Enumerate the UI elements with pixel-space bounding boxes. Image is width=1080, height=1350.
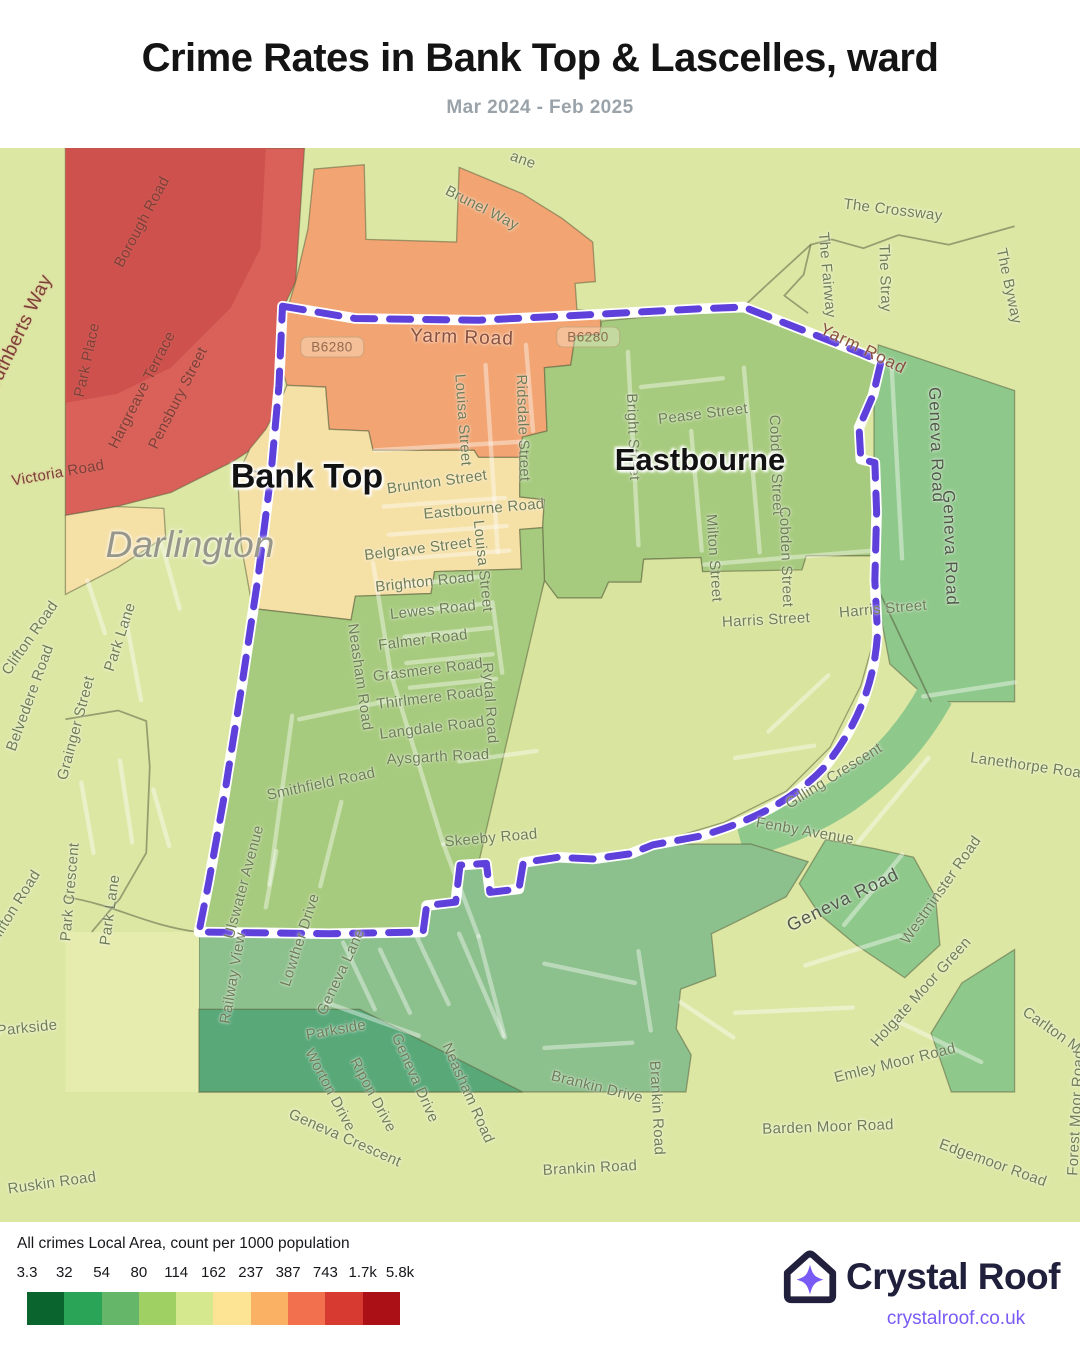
street-label-park-crescent: Park Crescent	[57, 842, 83, 942]
street-label-geneva-road: Geneva Road	[924, 387, 948, 504]
street-label-lanethorpe-road: Lanethorpe Road	[969, 749, 1080, 783]
street-label-brankin-drive: Brankin Drive	[549, 1067, 644, 1106]
sparkle-icon	[797, 1265, 824, 1295]
street-label-neasham-road: Neasham Road	[438, 1040, 497, 1145]
street-label-ulswater-avenue: Ulswater Avenue	[221, 823, 268, 940]
legend-tick: 1.7k	[349, 1264, 377, 1281]
route-chip-b6280: B6280	[300, 337, 364, 358]
street-label-yarm-road: Yarm Road	[816, 319, 909, 378]
street-label-cobden-street: Cobden Street	[776, 506, 797, 607]
street-label-skeeby-road: Skeeby Road	[444, 825, 538, 850]
street-label-harris-street: Harris Street	[722, 609, 811, 631]
street-label-geneva-road: Geneva Road	[938, 490, 962, 607]
street-label-falmer-road: Falmer Road	[377, 626, 468, 654]
street-label-parkside: Parkside	[0, 1016, 58, 1039]
street-label-belgrave-street: Belgrave Street	[363, 534, 472, 564]
street-label-milton-street: Milton Street	[702, 513, 725, 602]
report-header: Crime Rates in Bank Top & Lascelles, war…	[0, 0, 1080, 148]
legend-tick: 5.8k	[386, 1264, 414, 1281]
street-label-geneva-drive: Geneva Drive	[388, 1031, 442, 1125]
street-label-grasmere-road: Grasmere Road	[372, 655, 484, 685]
route-chip-b6280: B6280	[556, 327, 620, 348]
legend-tick: 32	[56, 1264, 73, 1281]
legend-swatch	[176, 1292, 213, 1325]
street-label-the-crossway: The Crossway	[843, 196, 944, 225]
legend-swatch	[27, 1292, 64, 1325]
legend-swatch	[139, 1292, 176, 1325]
street-label-park-lane: Park Lane	[97, 874, 124, 947]
legend-caption: All crimes Local Area, count per 1000 po…	[17, 1235, 350, 1253]
legend-color-scale	[27, 1292, 400, 1325]
place-label-bank-top: Bank Top	[231, 458, 383, 497]
report-footer: All crimes Local Area, count per 1000 po…	[0, 1222, 1080, 1350]
street-label-gilling-crescent: Gilling Crescent	[783, 739, 886, 812]
street-label-park-place: Park Place	[71, 321, 103, 398]
map-label-layer: Borough RoadSt Cuthberts WayPark PlaceHa…	[0, 148, 1080, 1222]
street-label-clifton-road: Clifton Road	[0, 598, 62, 678]
legend-swatch	[288, 1292, 325, 1325]
legend-swatch	[102, 1292, 139, 1325]
street-label-clifton-road: Clifton Road	[0, 867, 44, 949]
crystal-roof-logo: Crystal Roof crystalroof.co.uk	[780, 1246, 1070, 1342]
street-label-westminster-road: Westminster Road	[897, 833, 984, 948]
street-label-ridsdale-street: Ridsdale Street	[513, 374, 534, 482]
legend-tick: 80	[131, 1264, 148, 1281]
legend-swatch	[325, 1292, 362, 1325]
street-label-smithfield-road: Smithfield Road	[265, 764, 377, 804]
house-icon	[780, 1246, 840, 1308]
street-label-harris-street: Harris Street	[838, 597, 927, 622]
street-label-brunel-way: Brunel Way	[443, 182, 522, 233]
street-label-lewes-road: Lewes Road	[389, 597, 477, 623]
legend-tick: 3.3	[17, 1264, 38, 1281]
street-label-geneva-lane: Geneva Lane	[314, 926, 369, 1018]
street-label-neasham-road: Neasham Road	[344, 622, 376, 731]
street-label-grainger-street: Grainger Street	[54, 674, 98, 782]
street-label-st-cuthberts-way: St Cuthberts Way	[0, 271, 57, 418]
street-label-ruskin-road: Ruskin Road	[7, 1168, 98, 1197]
legend-tick: 162	[201, 1264, 226, 1281]
street-label-aysgarth-road: Aysgarth Road	[386, 746, 490, 768]
street-label-park-lane: Park Lane	[101, 601, 139, 674]
street-label-barden-moor-road: Barden Moor Road	[762, 1116, 894, 1138]
legend-swatch	[251, 1292, 288, 1325]
date-range: Mar 2024 - Feb 2025	[0, 81, 1080, 119]
street-label-louisa-street: Louisa Street	[451, 373, 474, 466]
street-label-ane: ane	[508, 148, 538, 172]
street-label-brunton-street: Brunton Street	[386, 467, 488, 498]
legend-tick: 114	[164, 1264, 188, 1281]
page: Crime Rates in Bank Top & Lascelles, war…	[0, 0, 1080, 1350]
brand-name: Crystal Roof	[846, 1256, 1060, 1298]
street-label-parkside: Parkside	[305, 1016, 368, 1043]
brand-url-link[interactable]: crystalroof.co.uk	[846, 1308, 1066, 1330]
street-label-yarm-road: Yarm Road	[410, 325, 514, 351]
street-label-brankin-road: Brankin Road	[542, 1157, 637, 1179]
street-label-the-stray: The Stray	[875, 244, 894, 312]
street-label-railway-view: Railway View	[217, 931, 250, 1025]
street-label-victoria-road: Victoria Road	[10, 456, 105, 489]
page-title: Crime Rates in Bank Top & Lascelles, war…	[0, 0, 1080, 81]
street-label-brighton-road: Brighton Road	[374, 568, 475, 595]
legend-tick: 237	[238, 1264, 263, 1281]
street-label-langdale-road: Langdale Road	[379, 713, 486, 743]
street-label-brankin-road: Brankin Road	[646, 1060, 668, 1155]
street-label-emley-moor-road: Emley Moor Road	[833, 1040, 958, 1087]
street-label-the-fairway: The Fairway	[815, 232, 839, 319]
street-label-geneva-road: Geneva Road	[784, 864, 903, 936]
legend-tick: 743	[313, 1264, 338, 1281]
street-label-borough-road: Borough Road	[111, 174, 173, 271]
street-label-forest-moor-road: Forest Moor Road	[1064, 1050, 1080, 1176]
legend-tick: 54	[93, 1264, 110, 1281]
street-label-the-byway: The Byway	[993, 247, 1026, 326]
legend-swatch	[363, 1292, 400, 1325]
street-label-rydal-road: Rydal Road	[479, 662, 502, 744]
street-label-holgate-moor-green: Holgate Moor Green	[867, 934, 974, 1050]
street-label-thirlmere-road: Thirlmere Road	[376, 683, 485, 713]
street-label-fenby-avenue: Fenby Avenue	[755, 814, 856, 848]
legend-tick: 387	[276, 1264, 301, 1281]
street-label-carlton-m: Carlton M	[1019, 1004, 1080, 1057]
legend-tick-labels: 3.33254801141622373877431.7k5.8k	[0, 1264, 460, 1284]
legend-swatch	[64, 1292, 101, 1325]
place-label-darlington: Darlington	[106, 524, 275, 566]
crime-map[interactable]: Borough RoadSt Cuthberts WayPark PlaceHa…	[0, 148, 1080, 1222]
street-label-pease-street: Pease Street	[657, 400, 749, 428]
legend-swatch	[213, 1292, 250, 1325]
street-label-lowther-drive: Lowther Drive	[277, 892, 323, 989]
place-label-eastbourne: Eastbourne	[615, 442, 786, 478]
street-label-edgemoor-road: Edgemoor Road	[937, 1136, 1049, 1191]
